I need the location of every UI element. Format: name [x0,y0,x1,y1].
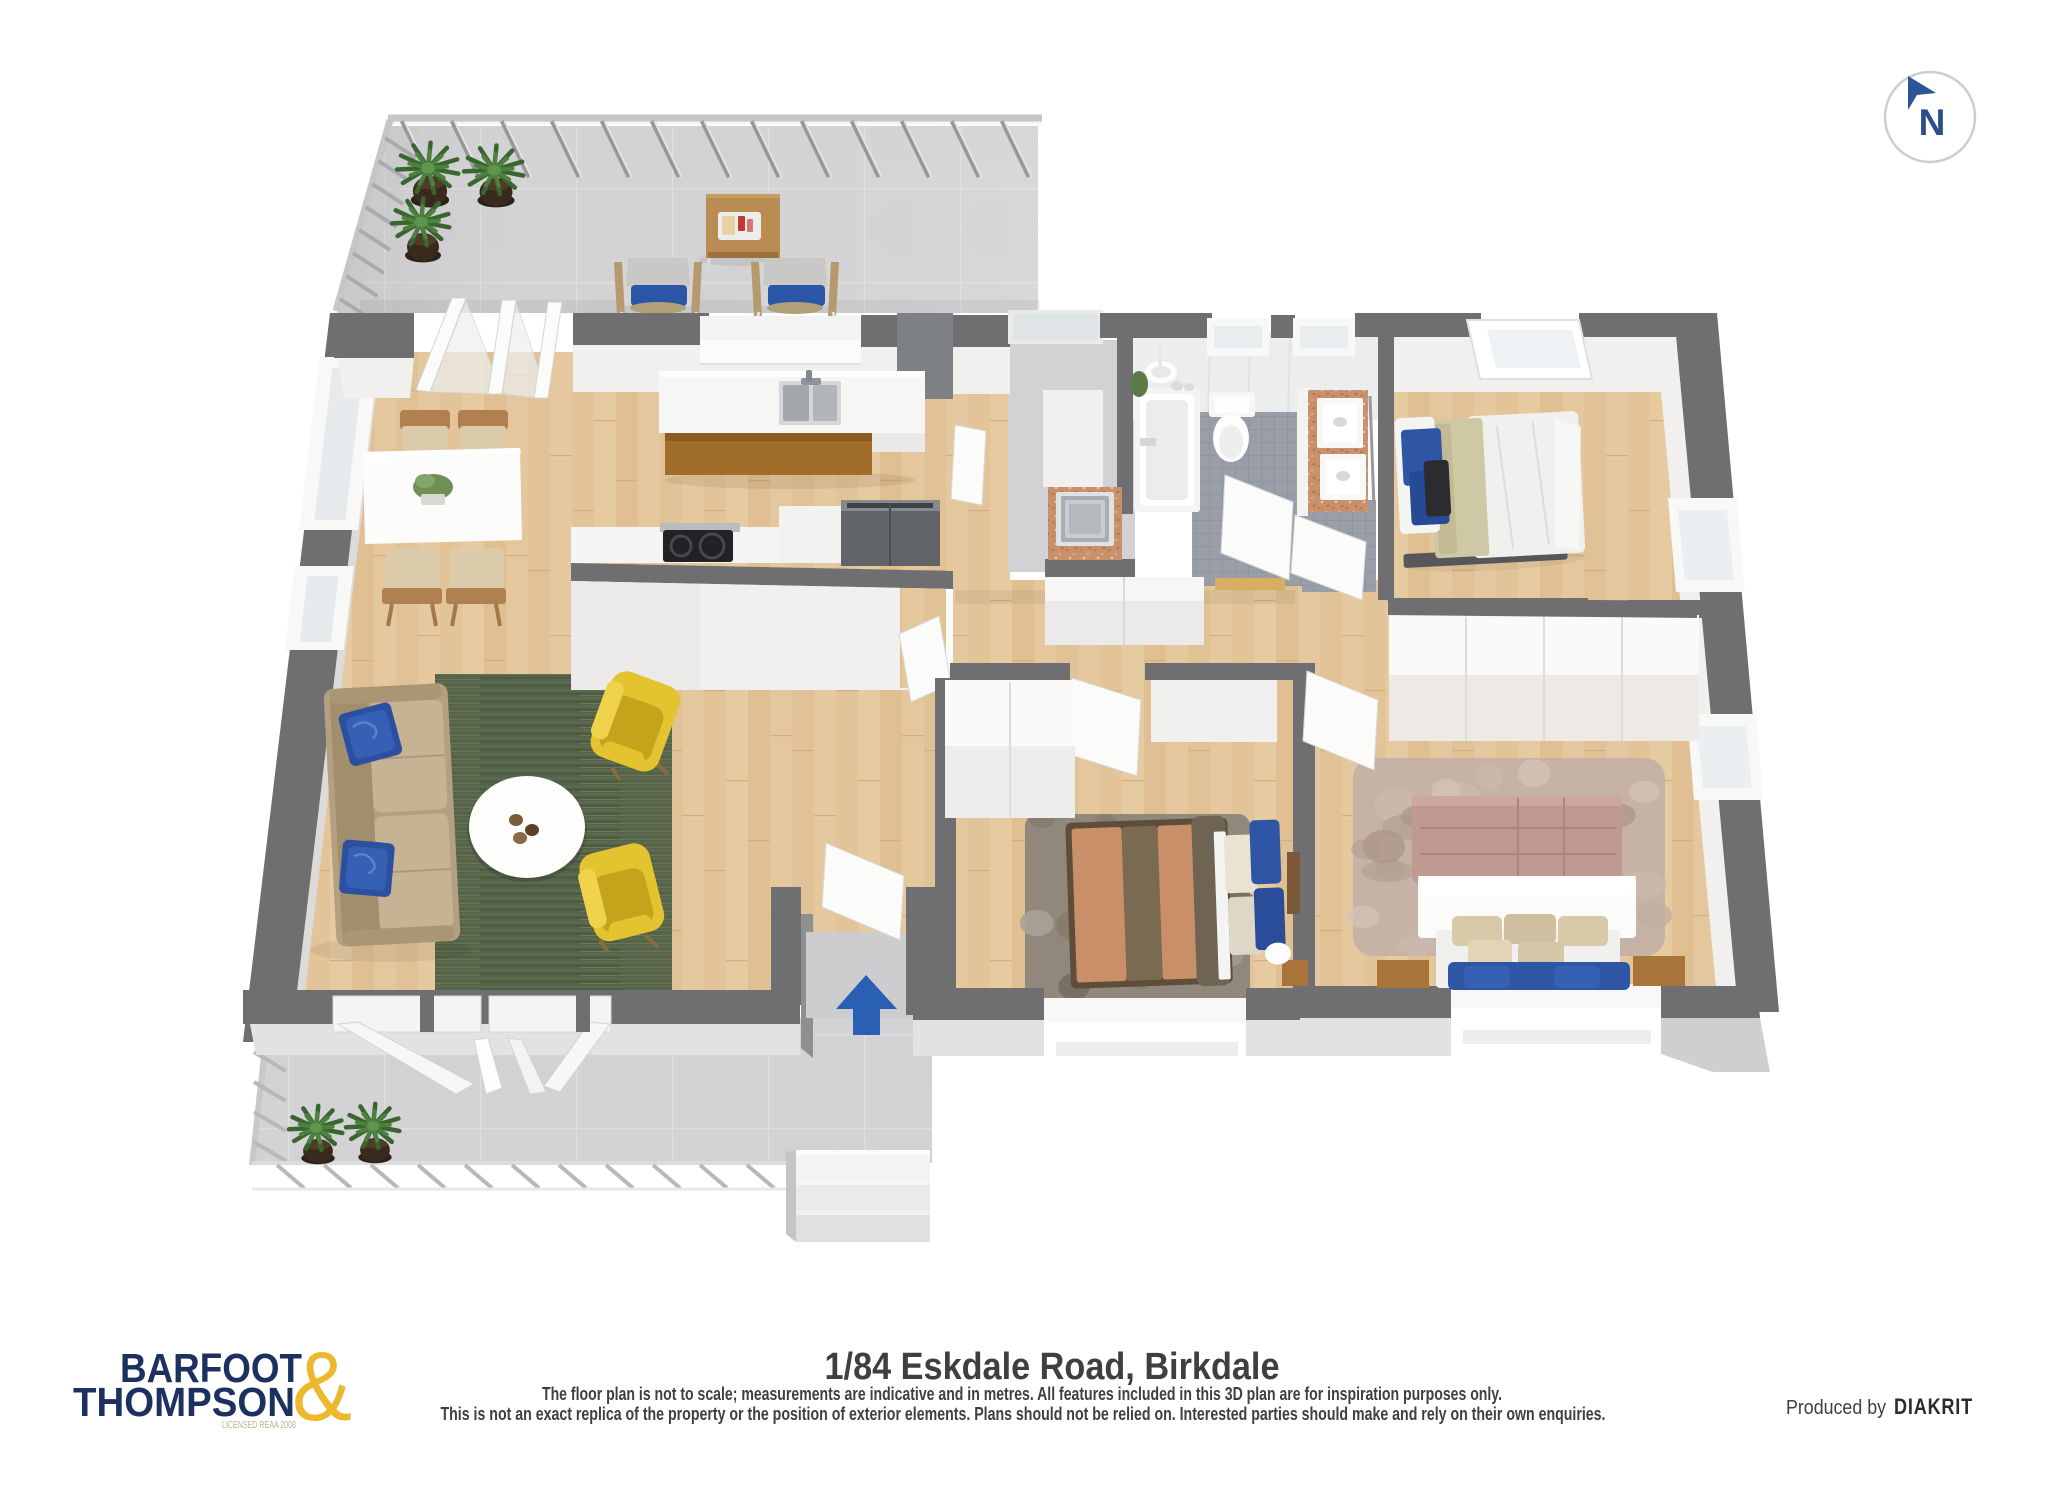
svg-text:&: & [292,1331,352,1441]
svg-text:This is not an exact replica o: This is not an exact replica of the prop… [441,1403,1606,1424]
svg-text:DIAKRIT: DIAKRIT [1894,1394,1973,1419]
svg-text:The floor plan is not to scale: The floor plan is not to scale; measurem… [542,1383,1502,1404]
svg-text:Produced by: Produced by [1786,1397,1886,1419]
svg-text:LICENSED REAA 2008: LICENSED REAA 2008 [222,1419,296,1431]
svg-text:1/84 Eskdale Road, Birkdale: 1/84 Eskdale Road, Birkdale [825,1346,1280,1388]
svg-text:N: N [1919,102,1946,143]
